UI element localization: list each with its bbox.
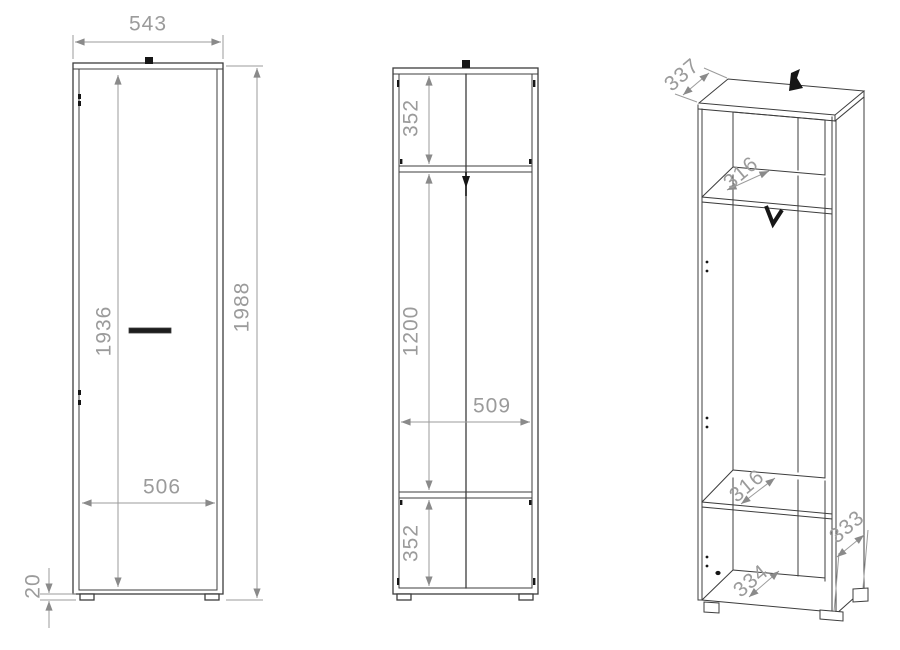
foot [519,594,533,600]
dim-bottom-section: 352 [400,500,430,586]
door-handle [129,328,171,333]
feet [704,588,868,621]
dim-label-total-height: 1988 [231,282,254,333]
top-panel [699,79,864,115]
feet [80,594,219,600]
dim-label-interior-width: 509 [473,395,511,418]
dim-label-foot-height: 20 [22,573,45,598]
dim-label-upper-shelf-depth: 316 [719,152,763,194]
dim-foot-height: 20 [22,568,77,628]
wall-mount-bracket [462,60,470,68]
foot [397,594,411,600]
feet [397,594,533,600]
front-view: 543 1988 1936 506 20 [22,13,264,629]
dim-base-width: 506 [82,476,215,504]
technical-drawing-canvas: 543 1988 1936 506 20 [0,0,900,650]
dim-label-base-width: 506 [143,476,181,499]
foot [205,594,219,600]
lower-shelf-3d [702,470,832,519]
wall-mount-bracket [789,69,803,91]
dim-width: 543 [73,13,223,60]
clothes-rail-hook [462,172,470,196]
foot [853,588,868,602]
dim-middle-section: 1200 [400,174,430,490]
foot [820,610,843,621]
dim-top-section: 352 [400,76,430,164]
dim-total-height: 1988 [226,66,263,600]
perspective-view: 337 316 316 334 333 [660,54,869,621]
carcass-view: 352 1200 509 352 [393,60,538,600]
foot [80,594,94,600]
dim-label-door-height: 1936 [93,306,116,357]
dim-door-height: 1936 [93,75,119,587]
dim-label-width: 543 [129,13,167,36]
dim-label-top-section: 352 [400,99,423,137]
dim-label-middle-section: 1200 [400,306,423,357]
wardrobe-dimension-drawing: 543 1988 1936 506 20 [0,0,900,650]
wall-mount-bracket [145,57,153,64]
dim-bottom-depth: 334 [729,560,779,602]
dim-upper-shelf-depth: 316 [719,152,769,194]
dim-label-bottom-section: 352 [400,524,423,562]
foot [704,602,719,613]
dim-label-top-depth: 337 [660,54,704,96]
shelf-pin-holes [706,261,721,576]
dim-label-bottom-depth: 334 [729,560,773,602]
